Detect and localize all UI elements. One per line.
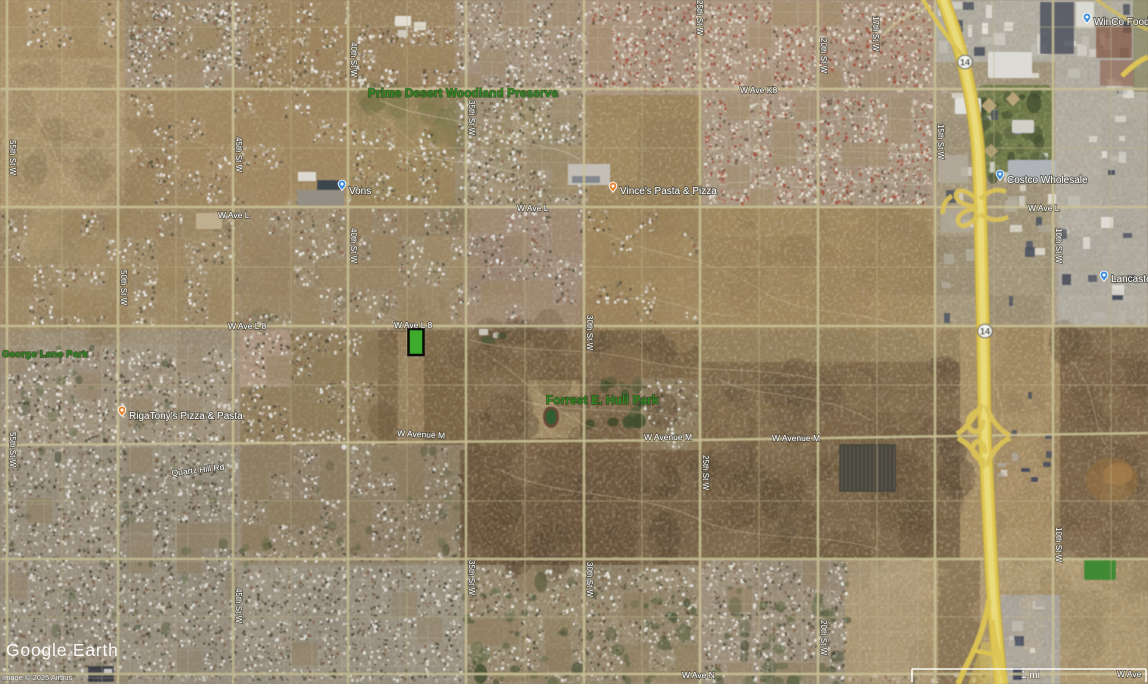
svg-text:Costco Wholesale: Costco Wholesale — [1007, 175, 1088, 186]
svg-text:RigaTony's Pizza & Pasta: RigaTony's Pizza & Pasta — [129, 411, 243, 422]
svg-text:Vince's Pasta & Pizza: Vince's Pasta & Pizza — [620, 186, 717, 197]
svg-text:40th St W: 40th St W — [349, 42, 358, 78]
svg-text:55th St W: 55th St W — [8, 432, 17, 468]
svg-text:45th St W: 45th St W — [234, 137, 243, 173]
svg-text:15th St W: 15th St W — [936, 124, 945, 160]
svg-text:W Ave: W Ave — [1117, 669, 1142, 679]
svg-text:35th St W: 35th St W — [467, 100, 476, 136]
svg-text:W Avenue M: W Avenue M — [772, 433, 820, 443]
svg-text:10th St W: 10th St W — [1054, 228, 1063, 264]
svg-text:25th St W: 25th St W — [701, 455, 710, 491]
svg-text:George Lane Park: George Lane Park — [2, 349, 89, 360]
svg-text:W Avenue M: W Avenue M — [644, 432, 692, 442]
svg-text:W Ave L: W Ave L — [517, 203, 549, 213]
svg-text:17th St W: 17th St W — [871, 16, 880, 52]
svg-text:20th St W: 20th St W — [819, 620, 828, 656]
svg-text:W Ave L 8: W Ave L 8 — [228, 321, 267, 331]
svg-text:25th St W: 25th St W — [695, 0, 704, 36]
svg-text:30th St W: 30th St W — [585, 562, 594, 598]
svg-text:10th St W: 10th St W — [1054, 527, 1063, 563]
svg-text:Google Earth: Google Earth — [6, 640, 119, 660]
svg-text:20th St W: 20th St W — [819, 38, 828, 74]
svg-text:50th St W: 50th St W — [119, 270, 128, 306]
svg-text:40th St W: 40th St W — [349, 228, 358, 264]
svg-text:30th St W: 30th St W — [585, 315, 594, 351]
svg-text:Vons: Vons — [349, 186, 371, 197]
svg-text:W Ave L: W Ave L — [1028, 203, 1060, 213]
svg-text:35th St W: 35th St W — [467, 560, 476, 596]
svg-text:Forrest E. Hull Park: Forrest E. Hull Park — [546, 395, 659, 407]
svg-text:Prime Desert Woodland Preserve: Prime Desert Woodland Preserve — [368, 88, 558, 100]
svg-text:W Ave L: W Ave L — [218, 210, 250, 220]
svg-text:Lancaster: Lancaster — [1111, 274, 1148, 285]
svg-text:Image © 2025 Airbus: Image © 2025 Airbus — [2, 673, 72, 682]
svg-text:45th St W: 45th St W — [234, 588, 243, 624]
svg-text:W Ave N: W Ave N — [682, 670, 715, 680]
svg-text:55th St W: 55th St W — [8, 140, 17, 176]
svg-text:WinCo Foods: WinCo Foods — [1094, 17, 1148, 28]
svg-text:W Ave L 8: W Ave L 8 — [394, 320, 433, 330]
svg-text:1 mi: 1 mi — [1021, 670, 1040, 681]
svg-text:W Ave K8: W Ave K8 — [740, 85, 777, 95]
